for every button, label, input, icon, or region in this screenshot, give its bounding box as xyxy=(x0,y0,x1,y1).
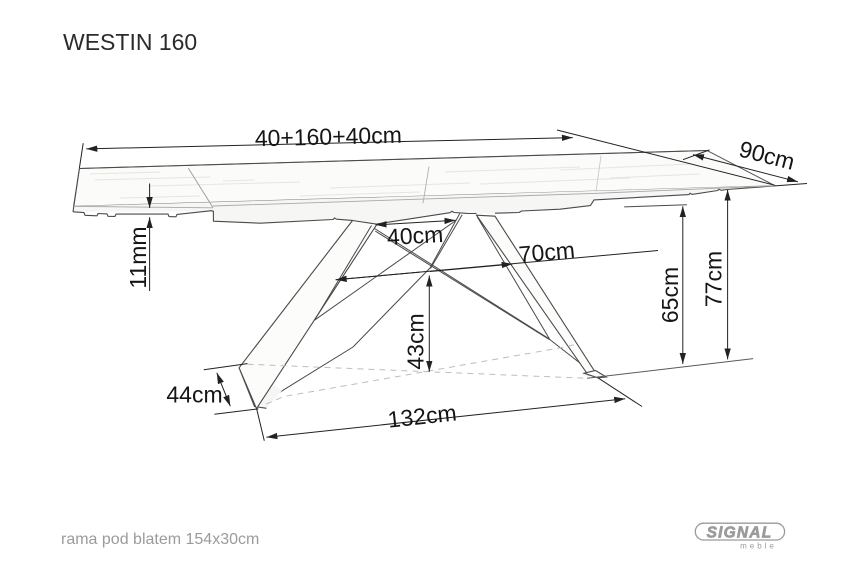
svg-text:43cm: 43cm xyxy=(403,313,429,369)
svg-text:meble: meble xyxy=(740,542,777,551)
svg-text:SIGNAL: SIGNAL xyxy=(707,525,773,542)
svg-text:132cm: 132cm xyxy=(386,399,457,432)
svg-text:40+160+40cm: 40+160+40cm xyxy=(254,122,402,152)
svg-text:65cm: 65cm xyxy=(657,267,683,323)
svg-text:WESTIN 160: WESTIN 160 xyxy=(63,29,197,55)
svg-text:44cm: 44cm xyxy=(166,382,222,408)
svg-text:40cm: 40cm xyxy=(386,221,444,250)
svg-text:70cm: 70cm xyxy=(518,237,576,268)
svg-text:90cm: 90cm xyxy=(737,136,798,175)
svg-text:77cm: 77cm xyxy=(701,251,727,307)
svg-text:rama pod blatem 154x30cm: rama pod blatem 154x30cm xyxy=(61,531,259,548)
svg-text:11mm: 11mm xyxy=(125,226,151,288)
